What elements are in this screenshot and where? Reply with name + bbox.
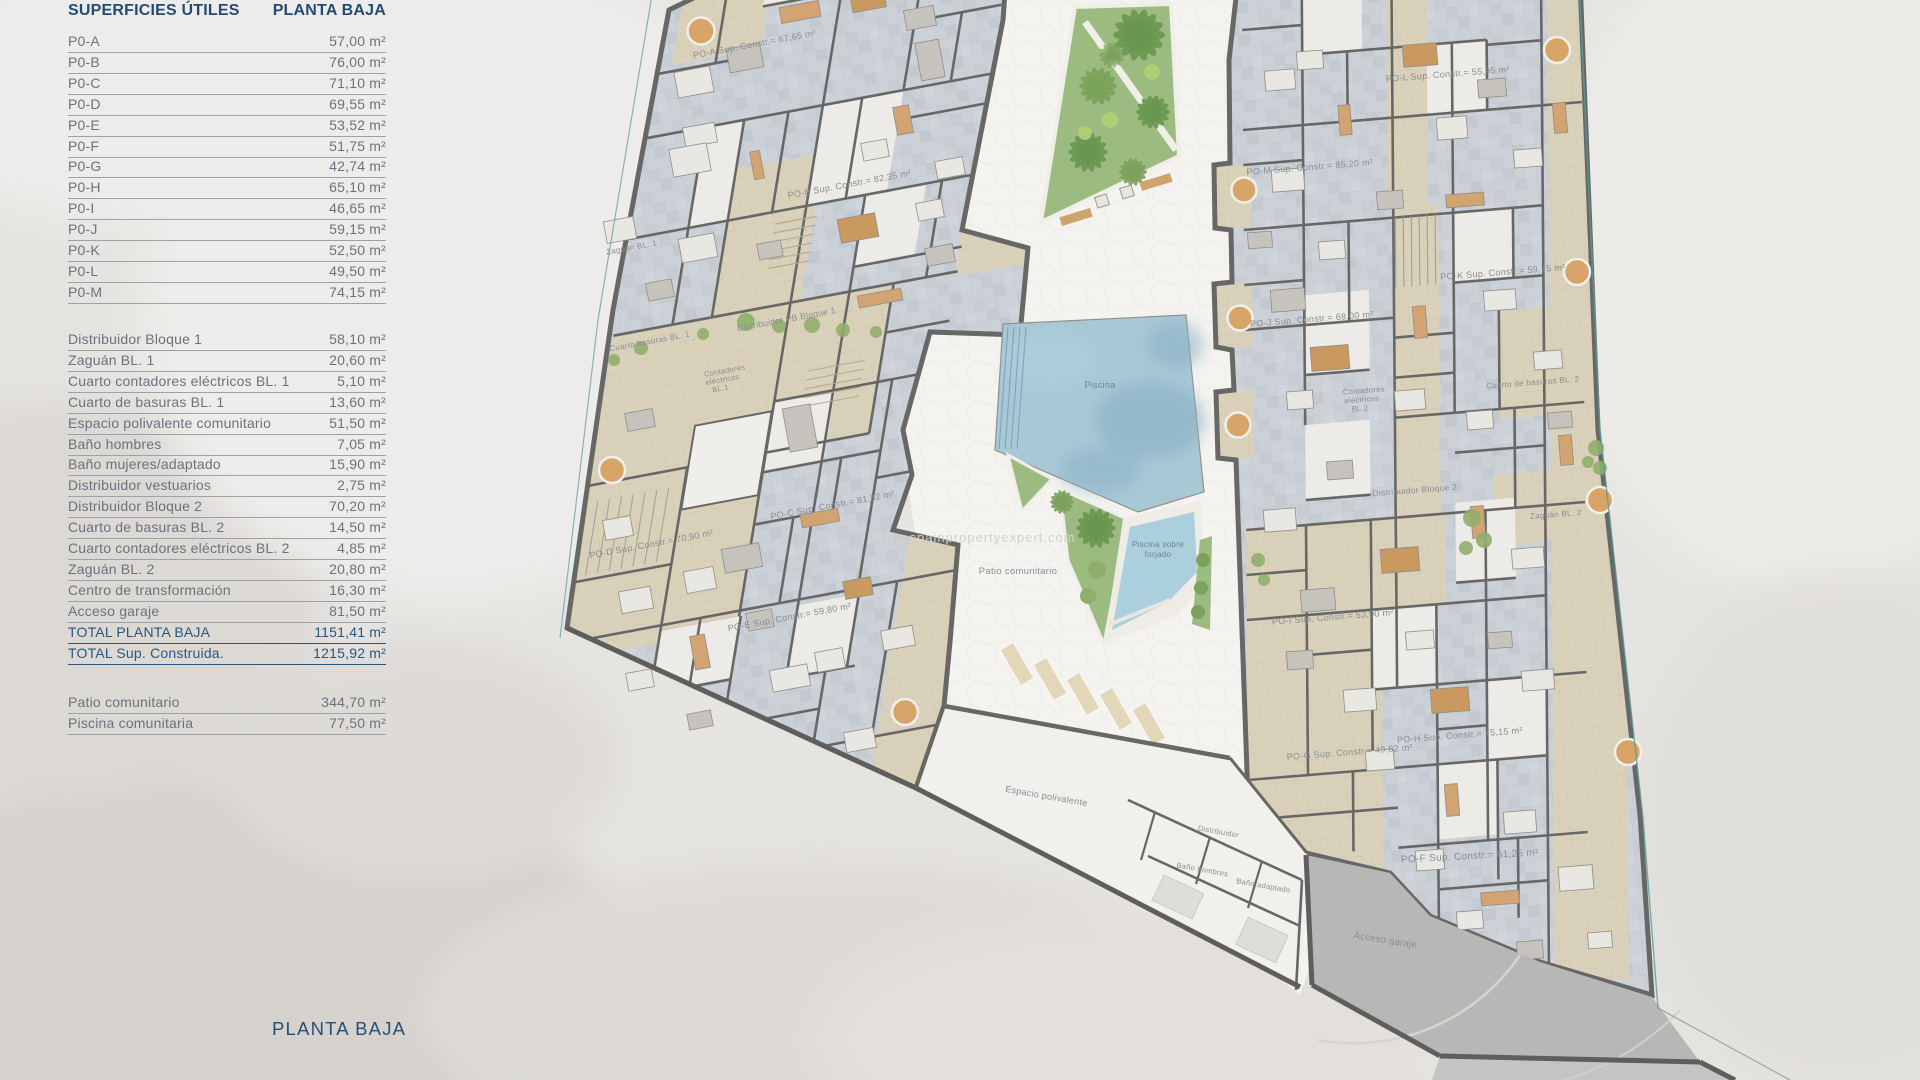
svg-text:forjado: forjado	[1145, 550, 1172, 559]
svg-text:Piscina sobre: Piscina sobre	[1132, 540, 1184, 549]
svg-text:Piscina: Piscina	[1084, 380, 1115, 390]
svg-text:www.spainpropertyexpert.com: www.spainpropertyexpert.com	[873, 530, 1075, 545]
svg-text:Patio comunitario: Patio comunitario	[979, 566, 1058, 577]
svg-text:BL.2: BL.2	[1351, 403, 1368, 413]
